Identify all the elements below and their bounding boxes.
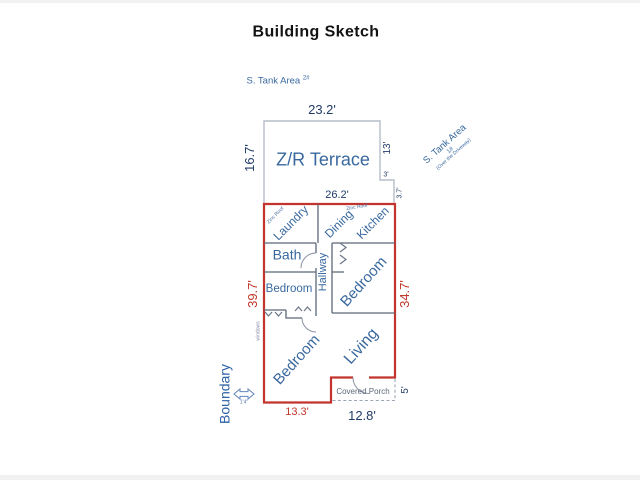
dim-building-width: 26.2' bbox=[325, 190, 349, 202]
boundary-offset-label: 1'4" bbox=[240, 400, 248, 405]
dim-terrace-height: 16.7' bbox=[243, 144, 257, 172]
room-terrace: Z/R Terrace bbox=[276, 151, 370, 170]
door-chevron-marks bbox=[340, 243, 346, 264]
bath-door-arc bbox=[301, 253, 316, 268]
room-hallway: Hallway bbox=[318, 253, 330, 292]
dim-building-left: 39.7' bbox=[246, 280, 260, 308]
dim-bottom-left: 13.3' bbox=[285, 407, 309, 419]
boundary-label: Boundary bbox=[218, 364, 233, 424]
dim-bottom-right: 12.8' bbox=[348, 409, 376, 423]
floorplan-svg bbox=[0, 0, 640, 480]
tank-area-2-number: 2# bbox=[303, 76, 310, 82]
dim-building-right: 34.7' bbox=[398, 280, 412, 308]
page-title: Building Sketch bbox=[253, 25, 380, 42]
dim-step-height: 3.7' bbox=[396, 187, 403, 198]
bedroom-door-arc bbox=[302, 318, 316, 332]
tank-area-2-text: S. Tank Area bbox=[246, 76, 300, 87]
building-sketch-page: Building Sketch S. Tank Area 2# 23.2' 16… bbox=[0, 0, 640, 480]
room-bedroom-small: Bedroom bbox=[266, 283, 313, 295]
window-marks bbox=[265, 307, 311, 316]
windows-label: windows bbox=[256, 321, 261, 340]
boundary-arrow-icon bbox=[234, 389, 254, 399]
dim-terrace-right: 13' bbox=[383, 141, 394, 154]
room-covered-porch: Covered Porch bbox=[336, 388, 389, 396]
dim-porch-height: 5' bbox=[401, 386, 412, 393]
dim-terrace-width: 23.2' bbox=[308, 103, 336, 117]
room-bath: Bath bbox=[273, 248, 302, 263]
dim-step-width: 3' bbox=[383, 171, 388, 178]
tank-area-2-label: S. Tank Area 2# bbox=[246, 76, 309, 87]
